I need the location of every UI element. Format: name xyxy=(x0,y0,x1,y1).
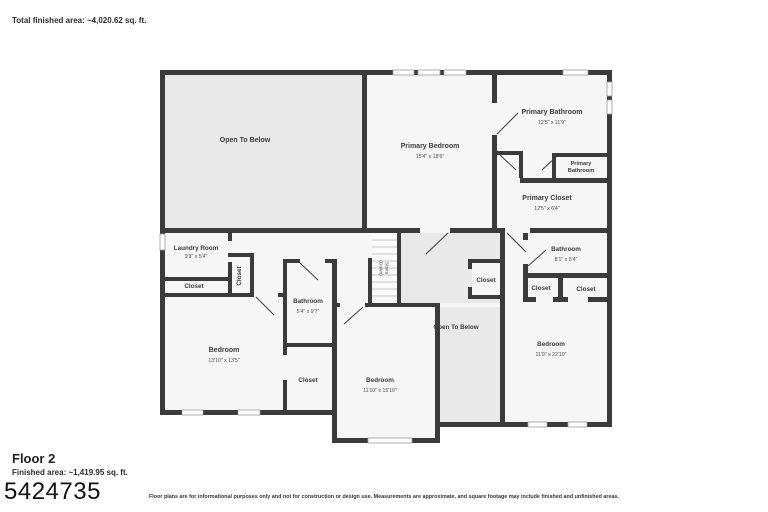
room-dims-laundry: 9'9" x 5'4" xyxy=(185,254,208,260)
room-label-closet-right-2: Closet xyxy=(576,286,596,293)
room-dims-bedroom-bottom-middle: 11'10" x 15'10" xyxy=(363,388,397,394)
floorplan-drawing: Open To Below Primary Bedroom 15'4" x 18… xyxy=(0,0,768,512)
room-label-open-to-below-middle: Open To Below xyxy=(433,324,478,331)
listing-id-watermark: 5424735 xyxy=(4,478,101,506)
room-label-bedroom-right: Bedroom xyxy=(537,341,565,348)
room-label-primary-bathroom-wc-line2: Bathroom xyxy=(568,168,594,174)
room-dims-bathroom-middle: 5'4" x 9'7" xyxy=(297,309,320,315)
room-label-primary-closet: Primary Closet xyxy=(522,195,572,202)
room-label-bedroom-bottom-middle: Bedroom xyxy=(366,377,394,384)
room-label-closet-right-1: Closet xyxy=(531,285,551,292)
room-dims-primary-bedroom: 15'4" x 18'6" xyxy=(416,154,445,160)
floor-title: Floor 2 xyxy=(12,451,55,466)
room-label-closet-laundry-side: Closet xyxy=(236,265,243,285)
room-dims-bedroom-bottom-left: 13'10" x 13'5" xyxy=(208,358,239,364)
disclaimer-text: Floor plans are for informational purpos… xyxy=(0,494,768,500)
room-label-primary-bathroom: Primary Bathroom xyxy=(521,109,582,116)
room-label-closet-middle: Closet xyxy=(476,277,496,284)
room-label-bathroom-middle: Bathroom xyxy=(293,298,323,305)
room-dims-primary-bathroom: 12'5" x 11'9" xyxy=(538,120,566,126)
room-label-bathroom-right: Bathroom xyxy=(551,246,581,253)
floorplan-page: Total finished area: ~4,020.62 sq. ft. xyxy=(0,0,768,512)
room-label-closet-bedroom-left: Closet xyxy=(298,377,318,384)
room-label-laundry: Laundry Room xyxy=(174,245,219,252)
room-dims-bedroom-right: 11'9" x 22'10" xyxy=(536,352,567,358)
stairs-label-line1: Stairs xyxy=(384,262,390,275)
room-label-primary-bedroom: Primary Bedroom xyxy=(401,143,460,150)
room-label-bedroom-bottom-left: Bedroom xyxy=(209,347,240,354)
room-label-primary-bathroom-wc-line1: Primary xyxy=(571,161,593,167)
room-label-closet-laundry-below: Closet xyxy=(184,283,204,290)
room-dims-primary-closet: 12'5" x 6'4" xyxy=(534,206,560,212)
room-label-open-to-below-upper: Open To Below xyxy=(220,137,271,144)
room-dims-bathroom-right: 8'1" x 5'4" xyxy=(555,257,578,263)
stairs-label-line2: (Down) xyxy=(378,260,384,276)
floor-area-text: Finished area: ~1,419.95 sq. ft. xyxy=(12,468,128,477)
